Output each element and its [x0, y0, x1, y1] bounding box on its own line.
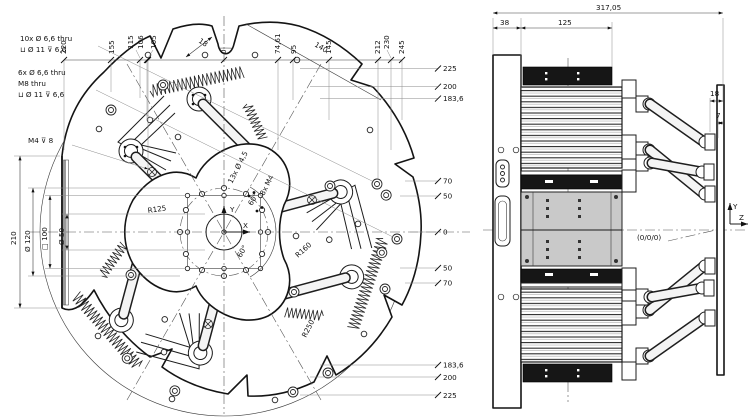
- upper-rail-strip: [521, 171, 622, 175]
- lower-rail: [521, 269, 622, 283]
- dim-label: 74,61: [273, 33, 282, 54]
- axis-y-label: Y: [229, 205, 235, 214]
- dim-label: 183,6: [443, 94, 464, 103]
- dim-label: 220: [59, 40, 68, 54]
- dim-offset: 18: [710, 89, 720, 98]
- upper-heatsink: [521, 87, 622, 168]
- side-view: 317,05 38 125 18 7 (0/0/0) Y Z: [483, 3, 748, 408]
- dim-label: 155: [107, 40, 116, 54]
- dim-label: 145: [324, 40, 333, 54]
- central-block: [521, 192, 622, 266]
- dim-label-sq100: □ 100: [40, 227, 49, 250]
- lower-black-cap: [523, 364, 612, 382]
- dim-label-210: 210: [9, 231, 18, 245]
- axis-z-label: Z: [739, 213, 744, 222]
- dim-label: 115: [126, 35, 135, 49]
- dim-label: 70: [443, 177, 453, 186]
- dim-label: 225: [443, 391, 457, 400]
- dim-label: 95: [289, 45, 298, 54]
- dim-label-d50: Ø 50: [57, 227, 66, 245]
- dim-label: 0: [219, 49, 228, 54]
- dim-label: 183,6: [443, 361, 464, 370]
- dim-gap: 7: [716, 111, 721, 120]
- svg-text:6x Ø 6,6 thru: 6x Ø 6,6 thru: [18, 68, 66, 77]
- dim-label: 0: [443, 228, 448, 237]
- front-view: Y X 60° 60° R125 R160 R250 18 140 13x Ø …: [9, 16, 470, 417]
- side-top-dims: 317,05 38 125: [493, 3, 723, 100]
- origin-label: (0/0/0): [637, 233, 661, 242]
- dim-label: 225: [443, 64, 457, 73]
- dim-label: 50: [443, 264, 453, 273]
- upper-black-cap: [523, 67, 612, 85]
- dim-plate: 38: [500, 18, 510, 27]
- dim-label: 212: [373, 40, 382, 54]
- dim-label: 106: [136, 35, 145, 49]
- dim-label: 50: [443, 192, 453, 201]
- dim-housing: 125: [558, 18, 572, 27]
- origin-annotation: (0/0/0) Y Z: [637, 202, 748, 242]
- dim-label: 105: [149, 35, 158, 49]
- svg-text:M4 ⊽ 8: M4 ⊽ 8: [28, 136, 54, 145]
- technical-drawing-page: Y X 60° 60° R125 R160 R250 18 140 13x Ø …: [0, 0, 750, 418]
- dim-label: 200: [443, 373, 457, 382]
- axis-y-label: Y: [732, 202, 738, 211]
- upper-rail: [521, 175, 622, 189]
- dim-label: 245: [397, 40, 406, 54]
- dim-label: 200: [443, 82, 457, 91]
- svg-text:M8 thru: M8 thru: [18, 79, 46, 88]
- lower-rail-strip: [521, 283, 622, 287]
- hexapod-drawing: Y X 60° 60° R125 R160 R250 18 140 13x Ø …: [0, 0, 750, 418]
- dim-label-d120: Ø 120: [23, 230, 32, 252]
- axis-x-label: X: [243, 221, 248, 230]
- dim-label: 70: [443, 279, 453, 288]
- svg-text:⊔ Ø 11 ⊽ 6,6: ⊔ Ø 11 ⊽ 6,6: [18, 90, 65, 99]
- side-base-plate: [493, 55, 521, 408]
- dim-total: 317,05: [596, 3, 621, 12]
- dim-label: 230: [382, 35, 391, 49]
- lower-heatsink: [521, 289, 622, 362]
